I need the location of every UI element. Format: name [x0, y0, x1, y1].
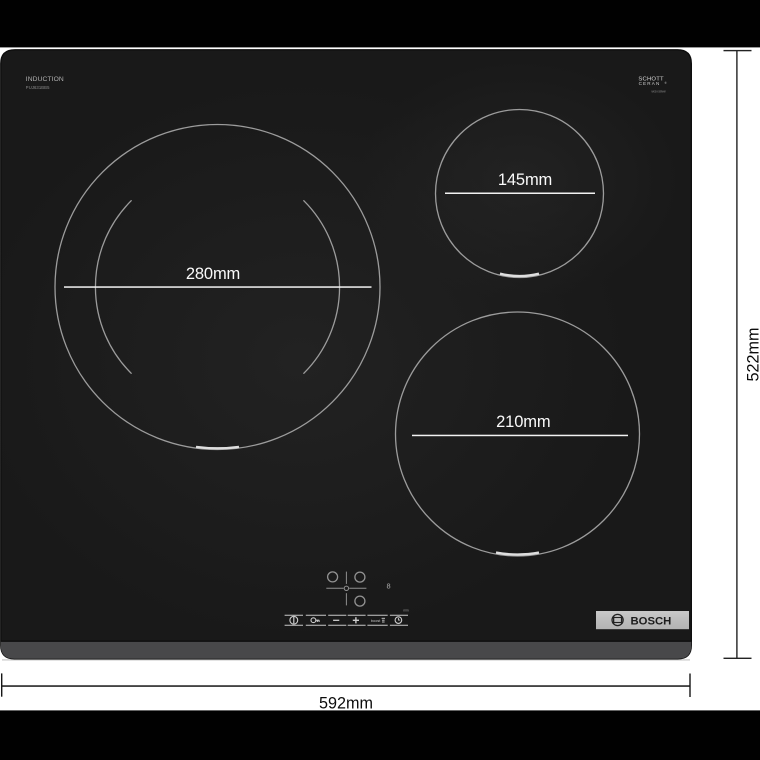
svg-text:CERAN: CERAN [639, 81, 661, 86]
svg-text:min: min [403, 608, 409, 612]
svg-text:INDUCTION: INDUCTION [26, 76, 64, 83]
svg-text:boost: boost [371, 619, 381, 623]
svg-text:145mm: 145mm [498, 171, 552, 189]
svg-text:592mm: 592mm [319, 695, 373, 713]
svg-text:BOSCH: BOSCH [631, 615, 672, 627]
svg-text:MADE IN GERMANY: MADE IN GERMANY [652, 90, 667, 94]
svg-text:522mm: 522mm [745, 328, 760, 382]
svg-text:PUJ631BB5: PUJ631BB5 [26, 85, 50, 90]
svg-text:210mm: 210mm [496, 413, 550, 431]
svg-text:8: 8 [386, 581, 390, 590]
svg-text:280mm: 280mm [186, 265, 240, 283]
